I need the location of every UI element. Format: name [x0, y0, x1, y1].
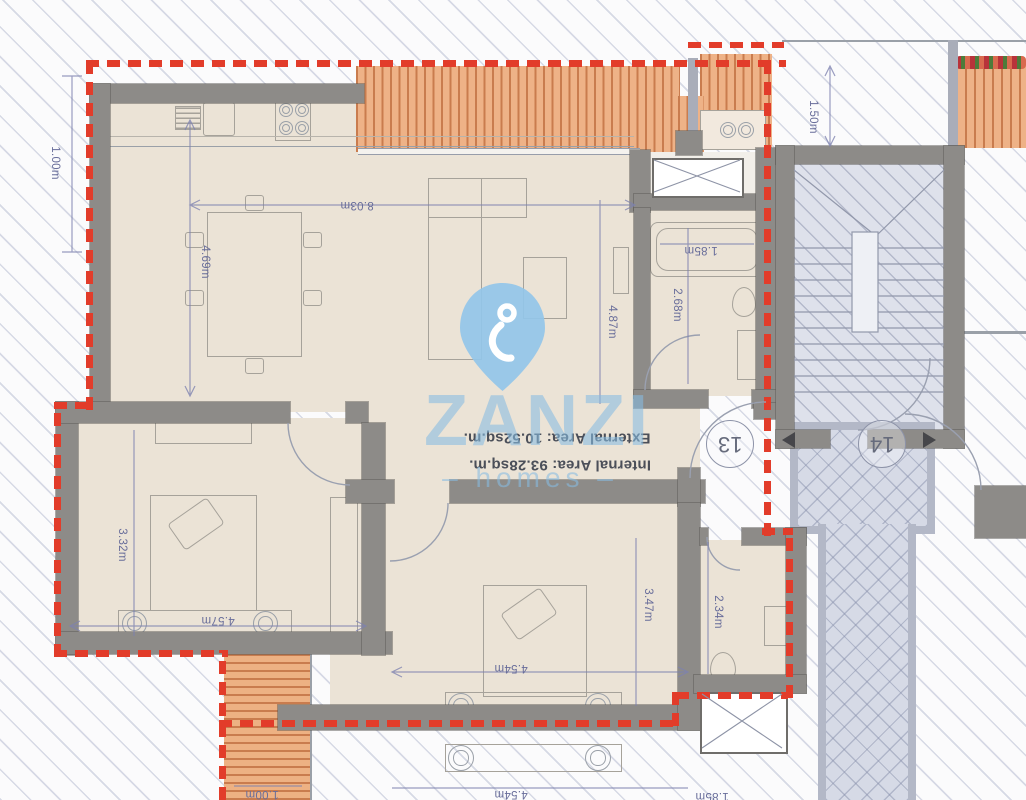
dim-line-offset-left: [62, 76, 82, 252]
dim-bed1-height: 3.32m: [116, 528, 128, 561]
dim-living-width: 8.03m: [340, 199, 373, 211]
dim-living-height: 4.69m: [199, 245, 211, 278]
dim-living-depth: 4.87m: [606, 305, 618, 338]
dim-bed2-width: 4.54m: [494, 662, 527, 674]
dim-terrace-offset: 1.50m: [807, 100, 819, 133]
door-arc-ensuite: [707, 537, 740, 570]
door-arc-bedroom1: [288, 423, 350, 485]
external-area-label: External Area: 10.52sq.m.: [463, 430, 650, 447]
shaft-x-bottom: [702, 694, 782, 748]
dim-ensuite-depth: 2.34m: [712, 595, 724, 628]
zanzi-pin-icon: [455, 281, 550, 393]
shaft-x-top: [654, 160, 740, 192]
dim-line-terrace-offset: [825, 66, 835, 146]
dim-line-living-height: [185, 120, 195, 396]
unit-14-label: 14: [870, 431, 894, 457]
stair-flight-lines: [794, 170, 944, 236]
dim-lower-tub: 1.85m: [695, 790, 728, 800]
dim-offset-left: 1.00m: [49, 146, 61, 179]
dim-lower-bed: 4.54m: [494, 788, 527, 800]
stair-void: [852, 232, 878, 332]
dim-line-bed2-width: [392, 667, 688, 677]
door-arc-stairwell: [858, 358, 930, 430]
internal-area-label: Internal Area: 93.28sq.m.: [469, 457, 651, 474]
door-arc-bedroom2: [390, 503, 448, 561]
dim-bed2-height: 3.47m: [642, 588, 654, 621]
unit-14-badge: 14: [858, 420, 906, 468]
unit-13-badge: 13: [706, 420, 754, 468]
dim-tub-width: 1.85m: [684, 244, 717, 256]
dim-line-living-width: [190, 200, 635, 210]
floor-plan: 13 14: [0, 0, 1026, 800]
door-arc-bathroom: [645, 335, 700, 390]
dim-bed1-width: 4.57m: [201, 614, 234, 626]
dim-lower-offset: 1.00m: [245, 788, 278, 800]
dim-bath-depth: 2.68m: [671, 288, 683, 321]
unit-13-label: 13: [718, 431, 742, 457]
plan-linework: [0, 0, 1026, 800]
door-arc-unit14: [905, 414, 981, 490]
